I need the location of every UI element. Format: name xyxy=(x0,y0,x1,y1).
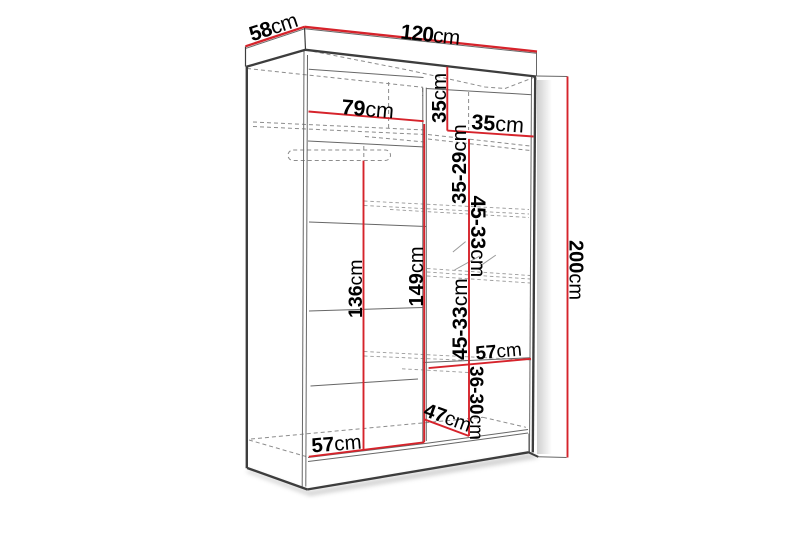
svg-text:57cm: 57cm xyxy=(475,340,523,365)
svg-text:35cm: 35cm xyxy=(471,110,525,138)
svg-text:57cm: 57cm xyxy=(311,431,363,458)
svg-text:45-33cm: 45-33cm xyxy=(449,278,472,360)
svg-text:136cm: 136cm xyxy=(345,259,367,318)
svg-text:45-33cm: 45-33cm xyxy=(466,196,489,278)
svg-text:200cm: 200cm xyxy=(565,240,587,300)
svg-text:149cm: 149cm xyxy=(406,246,428,306)
svg-text:35cm: 35cm xyxy=(428,73,451,123)
svg-text:35-29cm: 35-29cm xyxy=(448,124,471,204)
svg-text:79cm: 79cm xyxy=(341,95,395,123)
